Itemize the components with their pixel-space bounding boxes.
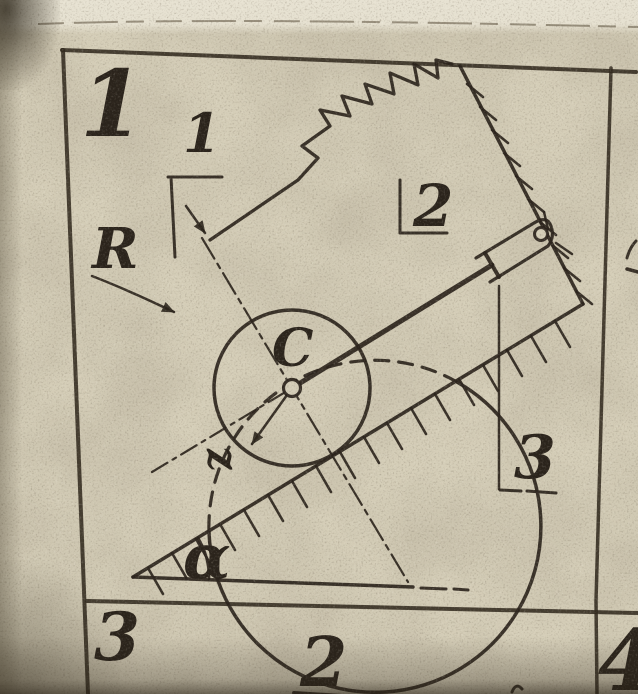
mechanics-figure: 1 1 2 3 R C α z 3 2 4: [0, 0, 638, 694]
textbook-photo: 1 1 2 3 R C α z 3 2 4: [0, 0, 638, 694]
photo-shadow-bottom: [0, 636, 638, 694]
photo-shadow-left-edge: [0, 0, 22, 694]
